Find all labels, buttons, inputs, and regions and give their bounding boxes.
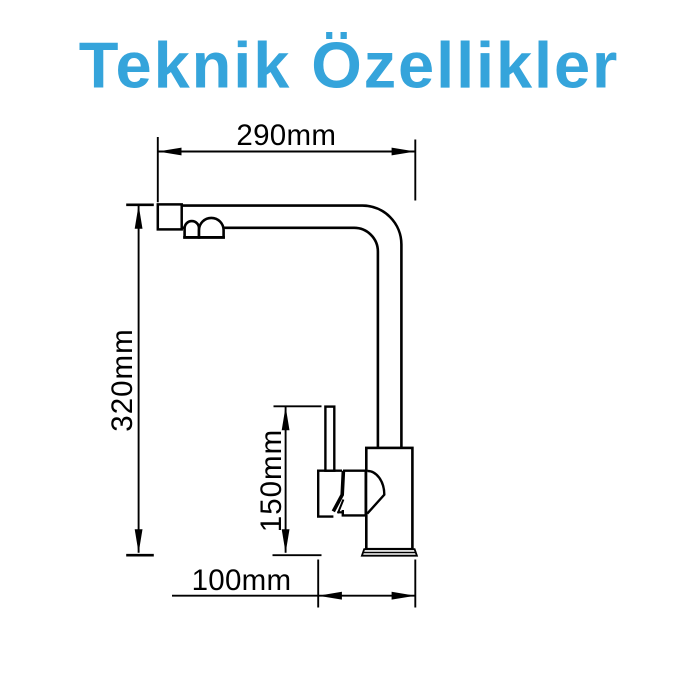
svg-text:290mm: 290mm xyxy=(236,119,336,152)
svg-text:320mm: 320mm xyxy=(106,328,139,431)
svg-text:Teknik Özellikler: Teknik Özellikler xyxy=(79,29,620,102)
svg-text:150mm: 150mm xyxy=(255,429,288,532)
svg-text:100mm: 100mm xyxy=(192,564,292,597)
